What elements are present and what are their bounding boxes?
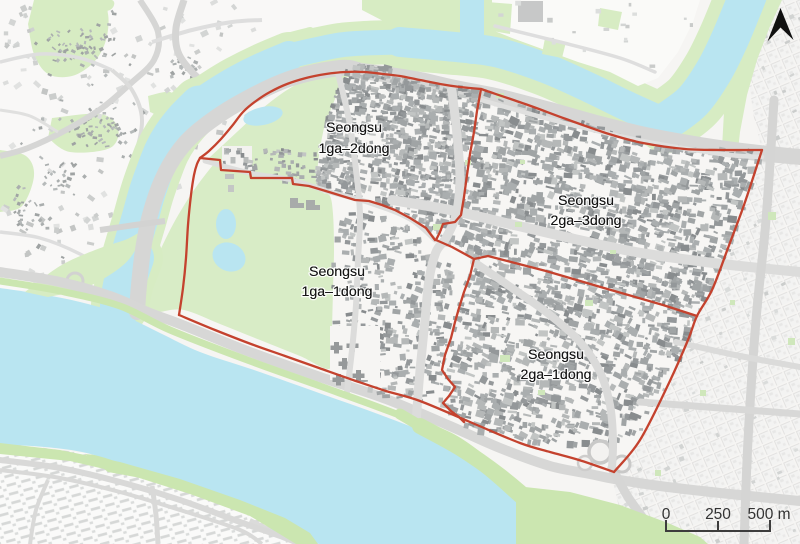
svg-text:Seongsu: Seongsu: [558, 193, 614, 209]
svg-text:2ga–3dong: 2ga–3dong: [550, 213, 621, 229]
svg-text:0: 0: [662, 506, 671, 523]
svg-text:1ga–2dong: 1ga–2dong: [318, 141, 389, 157]
svg-text:Seongsu: Seongsu: [326, 120, 382, 136]
svg-text:500 m: 500 m: [747, 506, 790, 523]
svg-text:1ga–1dong: 1ga–1dong: [301, 284, 372, 300]
svg-text:Seongsu: Seongsu: [309, 264, 365, 280]
svg-text:250: 250: [705, 506, 731, 523]
svg-text:2ga–1dong: 2ga–1dong: [520, 367, 591, 383]
svg-text:Seongsu: Seongsu: [528, 347, 584, 363]
